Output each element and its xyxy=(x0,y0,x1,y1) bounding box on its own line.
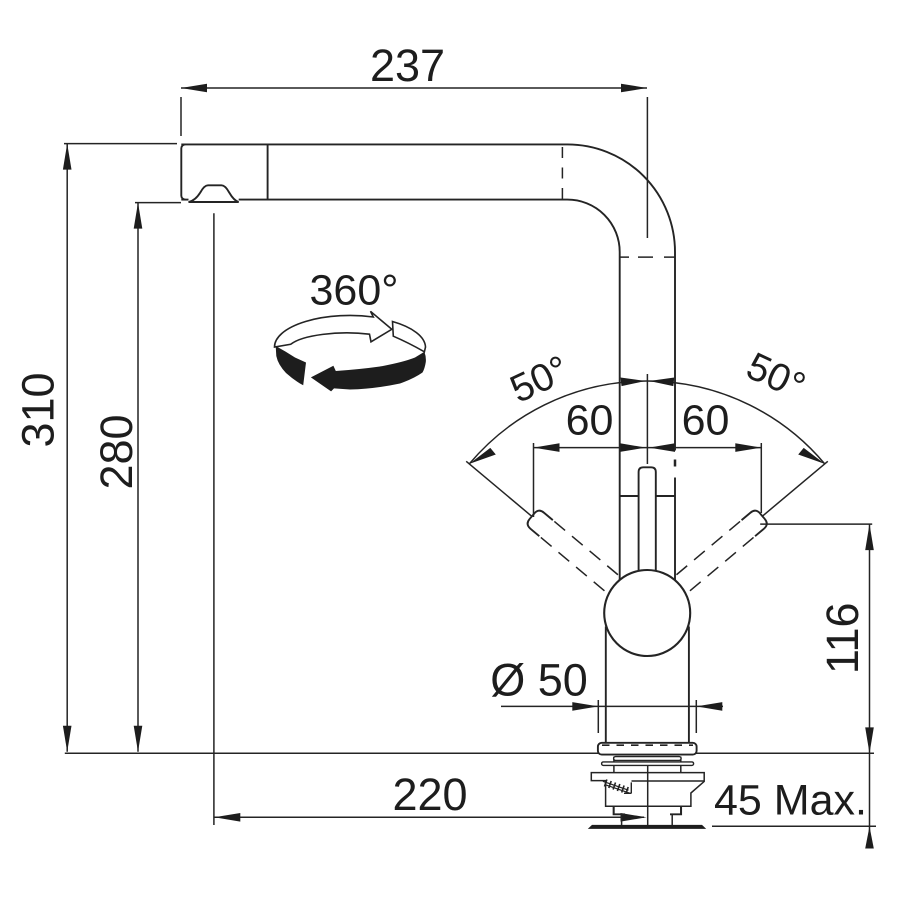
svg-text:Ø 50: Ø 50 xyxy=(490,655,588,706)
svg-text:280: 280 xyxy=(91,414,142,489)
svg-text:360°: 360° xyxy=(310,267,399,315)
svg-text:237: 237 xyxy=(370,40,445,91)
svg-text:220: 220 xyxy=(392,769,467,820)
svg-text:60: 60 xyxy=(682,396,730,444)
svg-text:45 Max.: 45 Max. xyxy=(714,777,867,825)
svg-text:60: 60 xyxy=(566,396,614,444)
svg-text:116: 116 xyxy=(817,602,868,674)
svg-text:310: 310 xyxy=(13,372,64,447)
svg-text:50°: 50° xyxy=(740,345,812,409)
